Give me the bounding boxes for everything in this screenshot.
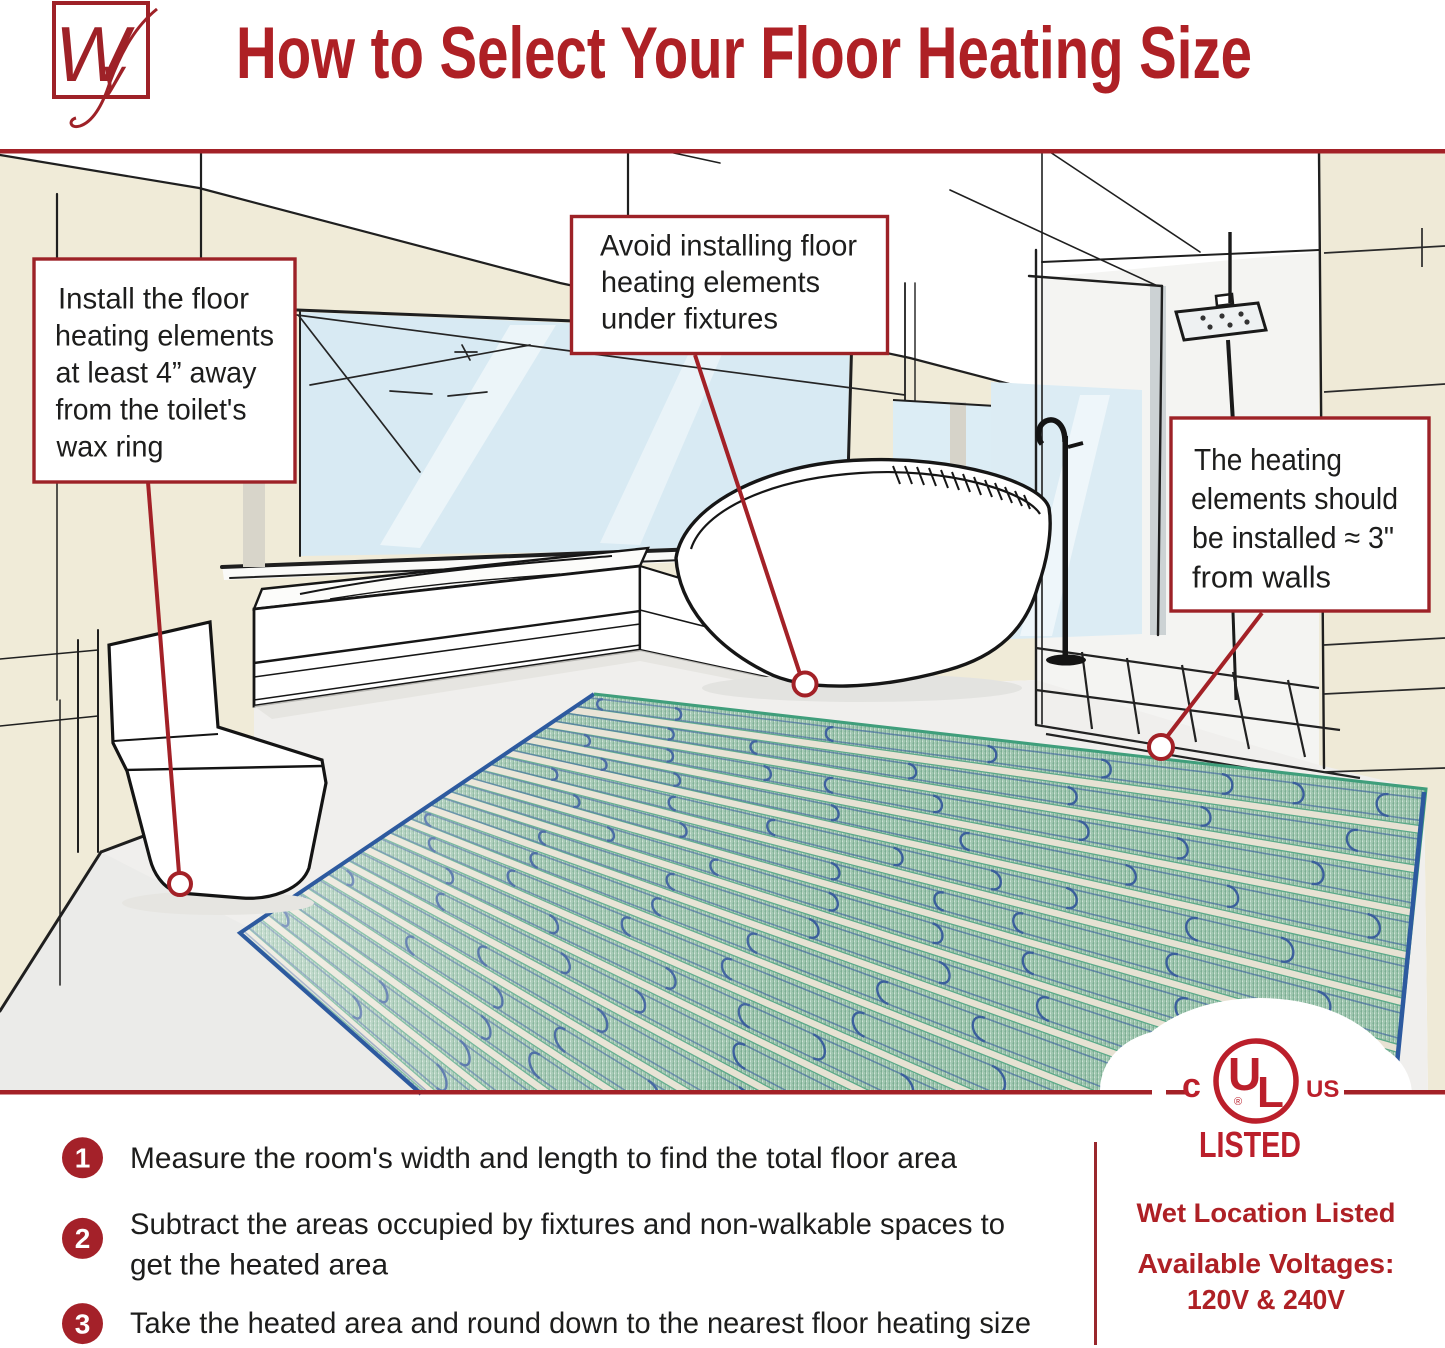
svg-text:Measure the room's width and l: Measure the room's width and length to f… [130, 1142, 957, 1175]
svg-text:from the toilet's: from the toilet's [56, 393, 247, 426]
svg-text:3: 3 [75, 1308, 91, 1339]
svg-text:be installed ≈ 3": be installed ≈ 3" [1192, 521, 1394, 555]
svg-text:2: 2 [75, 1223, 91, 1254]
svg-text:heating elements: heating elements [55, 319, 274, 352]
svg-text:under fixtures: under fixtures [601, 303, 778, 336]
svg-text:Subtract the areas occupied by: Subtract the areas occupied by fixtures … [130, 1208, 1005, 1241]
svg-text:How to Select Your Floor Heati: How to Select Your Floor Heating Size [236, 13, 1252, 94]
svg-text:US: US [1306, 1076, 1339, 1103]
svg-text:®: ® [1234, 1096, 1242, 1108]
svg-text:elements should: elements should [1191, 482, 1398, 516]
svg-text:Available Voltages:: Available Voltages: [1138, 1248, 1395, 1279]
svg-text:get the heated area: get the heated area [130, 1249, 388, 1282]
svg-text:120V & 240V: 120V & 240V [1187, 1284, 1346, 1315]
svg-text:Take the heated area and round: Take the heated area and round down to t… [130, 1307, 1031, 1340]
svg-text:c: c [1182, 1067, 1201, 1105]
svg-text:Install the floor: Install the floor [58, 282, 249, 315]
svg-text:Avoid installing floor: Avoid installing floor [600, 230, 857, 263]
svg-text:heating elements: heating elements [601, 266, 820, 299]
svg-text:LISTED: LISTED [1199, 1124, 1301, 1165]
svg-text:wax ring: wax ring [56, 430, 164, 463]
svg-text:Wet Location Listed: Wet Location Listed [1137, 1198, 1396, 1228]
svg-text:from walls: from walls [1192, 561, 1331, 595]
svg-text:The heating: The heating [1194, 443, 1342, 477]
svg-text:at least 4” away: at least 4” away [56, 356, 257, 389]
svg-text:1: 1 [75, 1143, 91, 1174]
svg-text:L: L [1257, 1068, 1284, 1117]
